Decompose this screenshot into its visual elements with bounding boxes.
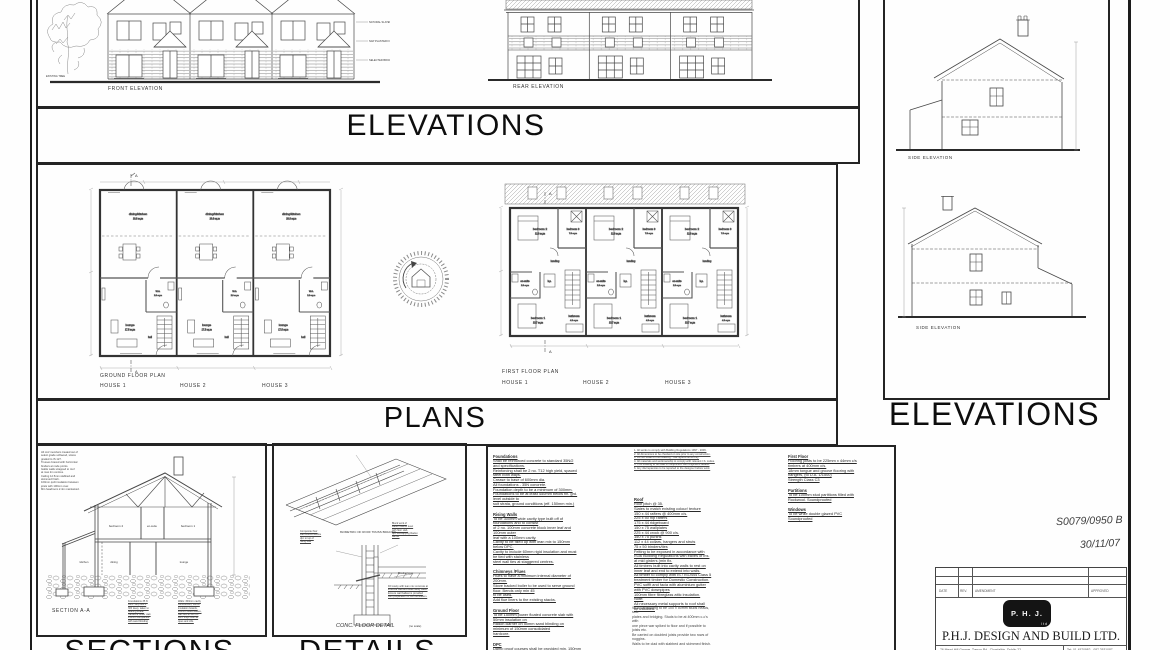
spec-general-notes: 1. All works to comply with Building Reg…: [634, 449, 715, 470]
side-elevation-2-drawing: [890, 196, 1105, 332]
house2-label-gf: HOUSE 2: [180, 383, 206, 389]
conc-floor-detail-note: (no scale): [409, 624, 421, 628]
handwritten-job-number: S0079/0950 B: [1056, 514, 1123, 528]
section-room-ensuite: en-suite: [147, 524, 157, 528]
rear-elevation-drawing: [478, 0, 782, 94]
title-elevations-right: ELEVATIONS: [883, 398, 1106, 430]
phj-logo: P. H. J. ltd: [1003, 600, 1051, 627]
elevation-note: SELECTED BRICK FINISH: [369, 58, 390, 62]
ground-floor-plan-drawing: A A: [83, 168, 358, 380]
isometric-caption: ISOMETRIC OF ROOF TRUSS BRACING: [340, 530, 397, 534]
title-plans: PLANS: [36, 404, 834, 433]
section-room-bedroom1: bedroom 1: [181, 524, 196, 528]
section-marker-top: A: [135, 173, 138, 178]
first-floor-plan-title: FIRST FLOOR PLAN: [502, 369, 559, 375]
front-elevation-label: FRONT ELEVATION: [108, 86, 163, 92]
house2-label-ff: HOUSE 2: [583, 380, 609, 386]
elevation-note: NATURAL SLATES: [369, 20, 390, 24]
sheet-left-border: [30, 0, 32, 650]
spec-column-3: First FloorFlooring joists to be 225mm x…: [788, 449, 888, 522]
section-notes-top: All roof members treated out ofselect gr…: [41, 451, 80, 492]
section-notes-right: Walls: 300mm cavityconstruction, 60mmins…: [178, 600, 201, 623]
conc-floor-detail-label: CONC. FLOOR DETAIL: [336, 623, 395, 629]
section-aa-label: SECTION A-A: [52, 608, 90, 614]
rear-elevation-label: REAR ELEVATION: [513, 84, 564, 90]
house1-label-ff: HOUSE 1: [502, 380, 528, 386]
title-block: DATE REV. AMENDMENT APPROVED P. H. J. lt…: [935, 567, 1127, 650]
sheet-right-border: [1128, 0, 1131, 650]
detail-note-left: Composite floorslab wound flexibledpc to…: [300, 530, 321, 543]
house3-label-ff: HOUSE 3: [665, 380, 691, 386]
company-name: P.H.J. DESIGN AND BUILD LTD.: [936, 629, 1126, 644]
titleblock-header-date: DATE: [939, 589, 947, 593]
detail-paragraph: Fill cavity with lean mix concrete atext…: [388, 585, 428, 598]
section-room-lounge: lounge: [180, 560, 189, 564]
first-floor-plan-drawing: A A: [493, 178, 763, 378]
house3-label-gf: HOUSE 3: [262, 383, 288, 389]
tree-note: EXISTING TREE: [46, 75, 65, 78]
titleblock-header-rev: REV.: [960, 589, 967, 593]
front-elevation-drawing: EXISTING TREE NATURAL SLATES NAP PLASTER…: [38, 0, 390, 96]
titleblock-header-amendment: AMENDMENT: [975, 589, 996, 593]
isometric-truss: [286, 455, 446, 525]
ground-floor-plan-title: GROUND FLOOR PLAN: [100, 373, 166, 379]
section-room-bedroom2: bedroom 2: [109, 524, 124, 528]
section-room-kitchen: kitchen: [80, 560, 89, 564]
elevation-note: NAP PLASTER FINISH: [369, 39, 390, 43]
title-details: DETAILS: [272, 635, 463, 650]
section-marker-bottom: A: [549, 349, 552, 354]
tree-sketch: [48, 2, 102, 74]
side-elevation-1-label: SIDE ELEVATION: [908, 155, 953, 160]
north-symbol: [392, 250, 450, 308]
spec-column-1: FoundationsShall be reinforced concrete …: [493, 449, 625, 650]
dimension-lines: [89, 180, 343, 370]
titleblock-header-approved: APPROVED: [1091, 589, 1109, 593]
phj-logo-text: P. H. J.: [1011, 609, 1043, 618]
detail-note-blinding: Blinding layer: [398, 572, 413, 575]
section-notes-left: Foundations 35 Nconc. strip 900 x300 dee…: [128, 600, 151, 623]
section-room-dining: dining: [110, 560, 118, 564]
section-line-marker: [131, 173, 135, 372]
handwritten-date: 30/11/07: [1080, 537, 1121, 551]
drawing-sheet: dining/kitchen 20.8 sq.m w.c. 2.0 sq.m l…: [0, 0, 1170, 650]
spec-column-2: RoofRoof pitch @ 35.Slates to match exis…: [634, 492, 784, 612]
phj-logo-sub: ltd: [1041, 623, 1048, 627]
spec-stud-paragraph: Stud partitioning to be 100 x 50mm studs…: [632, 606, 711, 646]
section-marker-top: A: [549, 191, 552, 196]
side-elevation-1-drawing: [890, 6, 1105, 168]
house1-label-gf: HOUSE 1: [100, 383, 126, 389]
side-elevation-2-label: SIDE ELEVATION: [916, 325, 961, 330]
title-elevations-top: ELEVATIONS: [36, 111, 856, 141]
detail-note-right: Block work ofRadon barrier levelwith flo…: [392, 522, 418, 538]
leader-lines: [356, 22, 368, 60]
title-sections: SECTIONS: [36, 635, 263, 650]
